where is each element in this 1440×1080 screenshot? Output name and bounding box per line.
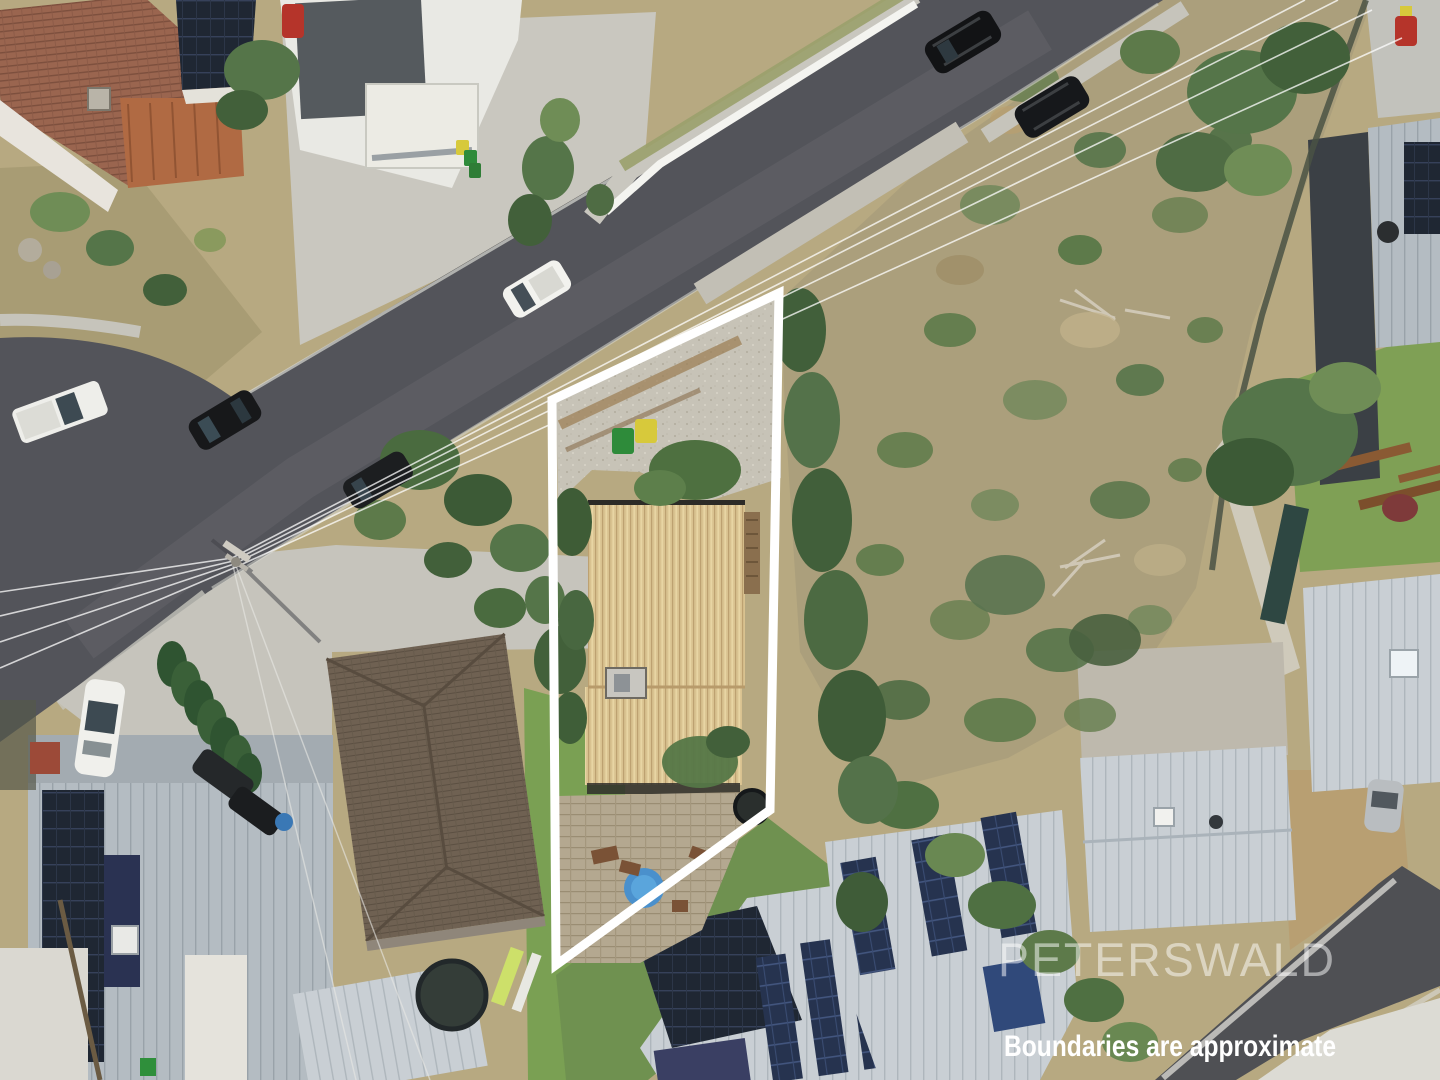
trampoline: [418, 961, 486, 1029]
watermark-text: PETERSWALD: [998, 933, 1336, 986]
red-shrub: [1382, 494, 1418, 522]
aerial-photo: PETERSWALD Boundaries are approximate: [0, 0, 1440, 1080]
green-bin: [140, 1058, 156, 1076]
red-car: [282, 4, 304, 38]
side-deck: [744, 512, 760, 594]
green-wheelie-bin: [612, 428, 634, 454]
yellow-wheelie-bin: [635, 419, 657, 443]
aerial-photo-canvas: PETERSWALD Boundaries are approximate: [0, 0, 1440, 1080]
skylight: [1390, 650, 1418, 677]
chimney: [88, 88, 110, 110]
disclaimer-text: Boundaries are approximate: [1004, 1030, 1336, 1063]
brick-chimney: [30, 742, 60, 774]
solar-array: [1404, 142, 1440, 234]
silver-car: [1363, 778, 1404, 833]
satellite-dish: [1377, 221, 1399, 243]
satellite-dish: [1209, 815, 1223, 829]
skylight: [112, 926, 138, 954]
blue-barrel: [275, 813, 293, 831]
solar-array: [104, 855, 140, 987]
